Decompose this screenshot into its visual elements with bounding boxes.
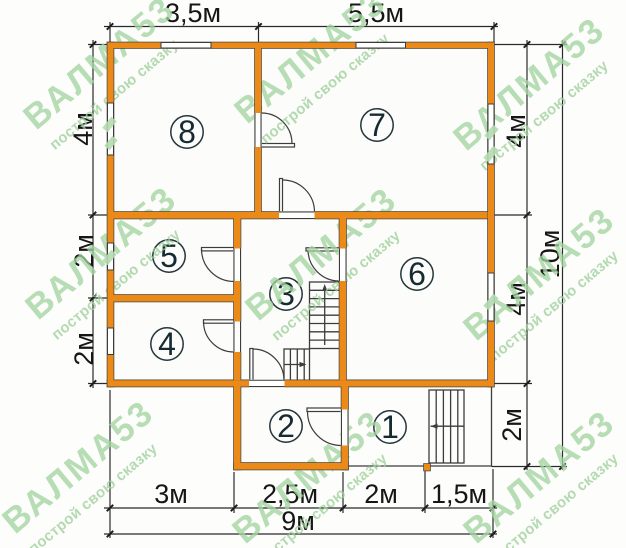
svg-text:4: 4	[158, 326, 176, 362]
svg-text:7: 7	[368, 107, 386, 143]
svg-text:2м: 2м	[69, 332, 99, 366]
svg-text:6: 6	[408, 256, 426, 292]
svg-text:8: 8	[178, 114, 196, 150]
svg-text:2м: 2м	[364, 479, 398, 509]
svg-text:2м: 2м	[497, 408, 527, 442]
svg-text:2: 2	[277, 408, 295, 444]
svg-text:3м: 3м	[154, 479, 188, 509]
